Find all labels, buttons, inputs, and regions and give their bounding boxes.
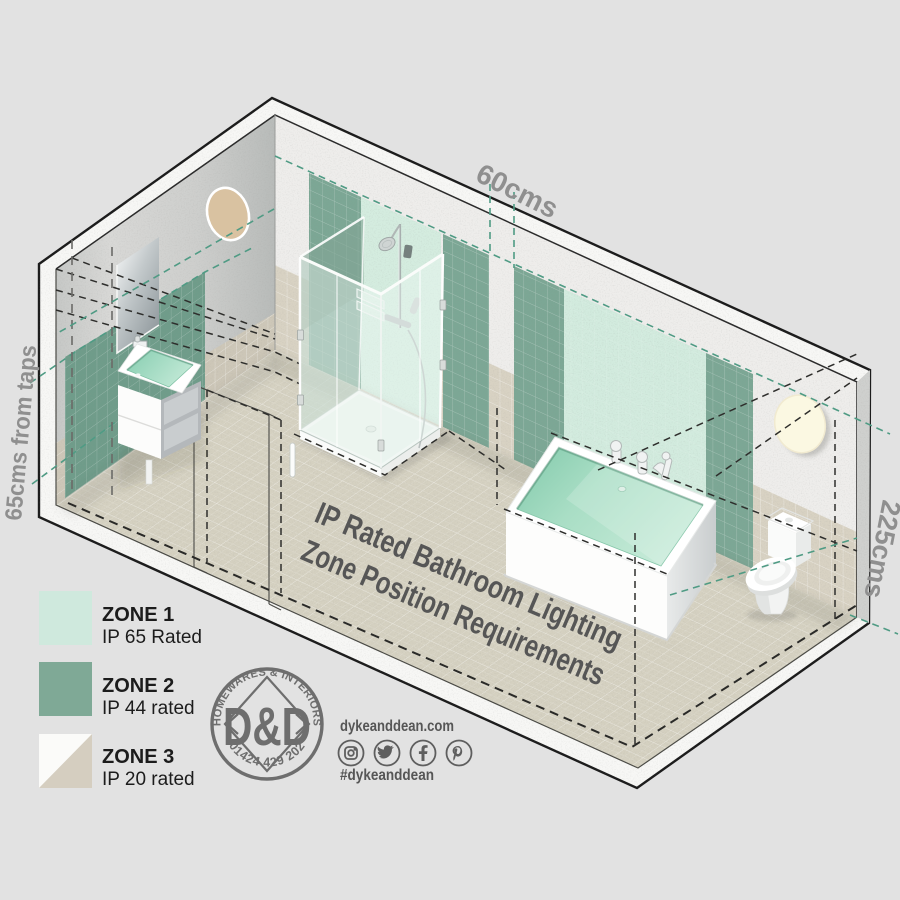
svg-text:#dykeanddean: #dykeanddean bbox=[340, 767, 434, 784]
svg-text:ZONE 2: ZONE 2 bbox=[102, 675, 174, 697]
svg-text:D&D: D&D bbox=[223, 697, 311, 757]
svg-text:IP 20 rated: IP 20 rated bbox=[102, 769, 195, 790]
svg-text:ZONE 1: ZONE 1 bbox=[102, 604, 174, 626]
svg-text:ZONE 3: ZONE 3 bbox=[102, 746, 174, 768]
svg-text:dykeanddean.com: dykeanddean.com bbox=[340, 718, 454, 735]
svg-text:IP 44 rated: IP 44 rated bbox=[102, 698, 195, 719]
svg-text:IP 65 Rated: IP 65 Rated bbox=[102, 627, 202, 648]
